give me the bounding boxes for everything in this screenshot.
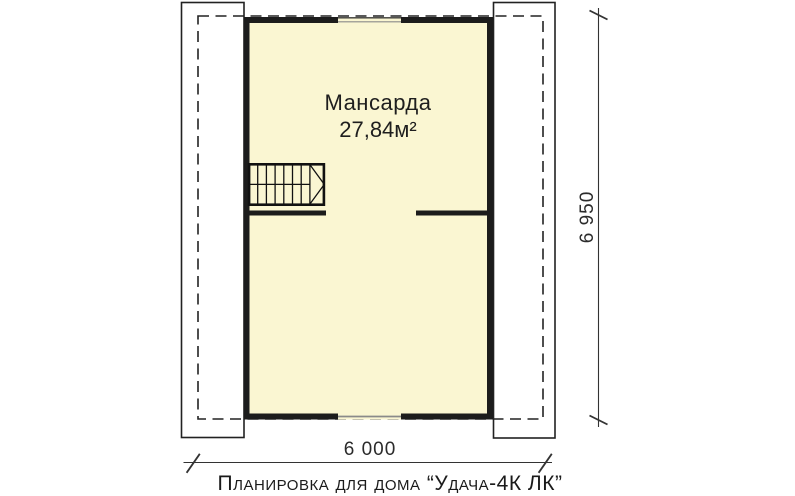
dimension-height-label: 6 950 <box>577 191 599 244</box>
room-area-label: 27,84м² <box>278 117 478 143</box>
stairs-symbol <box>249 164 324 205</box>
right-eave-column <box>494 3 556 439</box>
dim-h-tick-right <box>539 454 552 473</box>
plan-caption: Планировка для дома “Удача-4К ЛК” <box>140 472 640 496</box>
dimension-width-label: 6 000 <box>270 439 470 461</box>
floor-plan-drawing <box>0 0 795 496</box>
dim-h-tick-left <box>187 454 200 473</box>
attic-room-floor <box>244 17 494 420</box>
left-eave-column <box>182 3 245 438</box>
room-name-label: Мансарда <box>278 90 478 116</box>
floor-plan-canvas: Мансарда 27,84м² 6 950 6 000 Планировка … <box>0 0 795 496</box>
